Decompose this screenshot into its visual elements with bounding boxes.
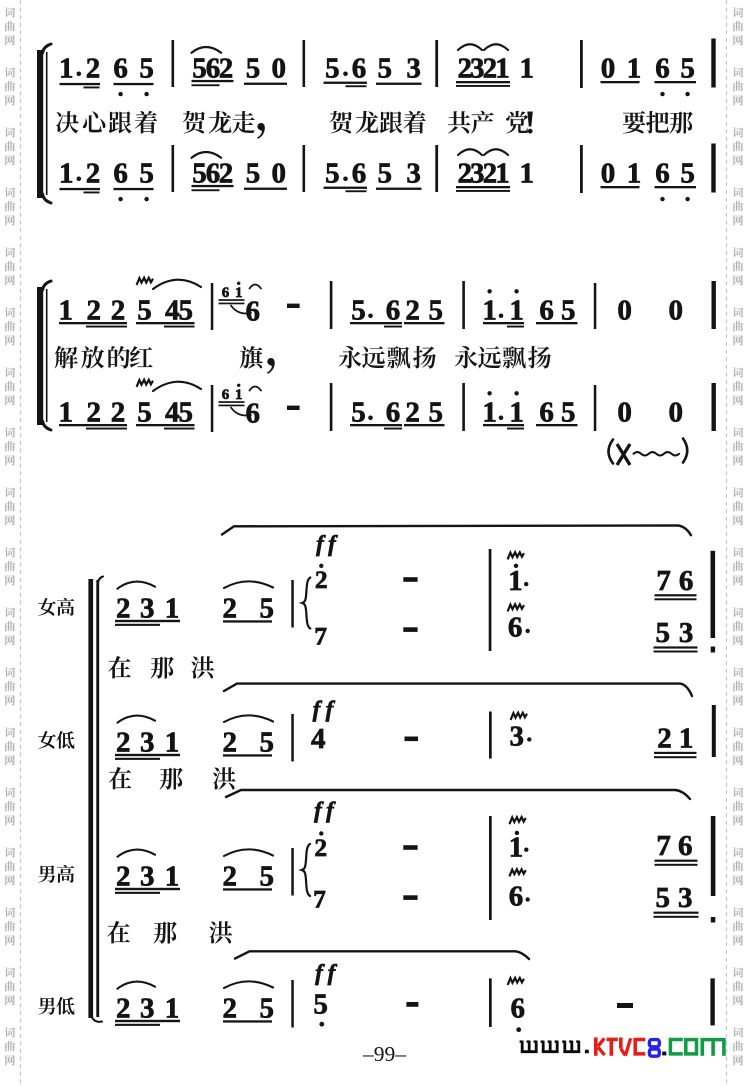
svg-text:1: 1 (509, 832, 524, 864)
svg-text:5: 5 (259, 860, 274, 892)
svg-text:5: 5 (192, 52, 207, 84)
svg-text:1: 1 (520, 157, 535, 189)
svg-text:0: 0 (271, 157, 286, 189)
svg-text:5: 5 (378, 52, 393, 84)
svg-text:5: 5 (137, 396, 152, 428)
svg-text:2: 2 (116, 860, 131, 892)
svg-text:5: 5 (561, 396, 576, 428)
svg-text:6: 6 (352, 52, 367, 84)
svg-text:6: 6 (222, 285, 230, 301)
svg-text:4: 4 (165, 294, 180, 326)
svg-text:7: 7 (313, 885, 326, 914)
svg-text:2: 2 (405, 294, 420, 326)
svg-text:6: 6 (508, 612, 523, 644)
svg-text:5: 5 (179, 294, 194, 326)
svg-text:7: 7 (656, 830, 671, 862)
svg-text:5: 5 (680, 52, 695, 84)
svg-text:2: 2 (223, 860, 238, 892)
svg-text:1: 1 (508, 565, 523, 597)
svg-text:6: 6 (222, 387, 230, 403)
svg-text:3: 3 (140, 592, 155, 624)
svg-text:7: 7 (314, 621, 327, 650)
svg-text:0: 0 (601, 52, 616, 84)
svg-text:1: 1 (165, 726, 180, 758)
svg-text:2: 2 (86, 52, 101, 84)
svg-text:2: 2 (116, 726, 131, 758)
svg-text:2: 2 (116, 592, 131, 624)
svg-text:6: 6 (386, 396, 401, 428)
svg-text:5: 5 (139, 52, 154, 84)
svg-text:3: 3 (140, 992, 155, 1024)
svg-text:3: 3 (140, 726, 155, 758)
svg-text:2: 2 (315, 565, 328, 594)
svg-text:2: 2 (86, 396, 101, 428)
svg-text:1: 1 (627, 52, 642, 84)
svg-text:2: 2 (111, 396, 126, 428)
svg-text:6: 6 (539, 294, 554, 326)
svg-text:0: 0 (669, 396, 684, 428)
svg-text:2: 2 (86, 294, 101, 326)
svg-text:6: 6 (678, 830, 693, 862)
svg-text:5: 5 (246, 157, 261, 189)
svg-text:5: 5 (325, 52, 340, 84)
svg-text:1: 1 (482, 396, 497, 428)
svg-text:5: 5 (137, 294, 152, 326)
svg-text:5: 5 (139, 157, 154, 189)
svg-text:0: 0 (617, 396, 632, 428)
svg-text:5: 5 (655, 617, 670, 649)
svg-text:5: 5 (655, 882, 670, 914)
svg-text:6: 6 (352, 157, 367, 189)
svg-text:1: 1 (235, 387, 243, 403)
svg-text:5: 5 (351, 396, 366, 428)
svg-text:5: 5 (313, 988, 328, 1020)
svg-text:6: 6 (655, 52, 670, 84)
svg-text:5: 5 (561, 294, 576, 326)
svg-text:6: 6 (511, 992, 526, 1024)
svg-text:5: 5 (246, 52, 261, 84)
svg-text:3: 3 (406, 52, 421, 84)
svg-text:3: 3 (406, 157, 421, 189)
svg-text:5: 5 (378, 157, 393, 189)
svg-text:2: 2 (223, 592, 238, 624)
svg-text:2: 2 (111, 294, 126, 326)
svg-text:2: 2 (405, 396, 420, 428)
svg-text:1: 1 (627, 157, 642, 189)
svg-text:5: 5 (259, 992, 274, 1024)
svg-text:1: 1 (495, 52, 510, 84)
svg-text:0: 0 (669, 294, 684, 326)
svg-text:5: 5 (325, 157, 340, 189)
svg-text:3: 3 (678, 882, 693, 914)
svg-text:2: 2 (116, 992, 131, 1024)
svg-text:1: 1 (165, 860, 180, 892)
svg-text:3: 3 (510, 721, 525, 753)
svg-text:1: 1 (679, 722, 694, 754)
svg-text:–99–: –99– (362, 1042, 406, 1066)
svg-text:3: 3 (140, 860, 155, 892)
svg-text:4: 4 (165, 396, 180, 428)
svg-text:5: 5 (259, 592, 274, 624)
svg-text:2: 2 (219, 52, 234, 84)
svg-text:2: 2 (657, 722, 672, 754)
svg-text:5: 5 (192, 157, 207, 189)
svg-text:6: 6 (509, 880, 524, 912)
svg-text:1: 1 (59, 52, 74, 84)
svg-text:1: 1 (495, 157, 510, 189)
svg-text:2: 2 (219, 157, 234, 189)
svg-text:4: 4 (311, 723, 326, 755)
svg-text:2: 2 (223, 992, 238, 1024)
svg-text:1: 1 (59, 396, 74, 428)
svg-text:2: 2 (223, 726, 238, 758)
svg-text:0: 0 (271, 52, 286, 84)
svg-text:6: 6 (245, 295, 260, 327)
svg-text:1: 1 (520, 52, 535, 84)
svg-text:3: 3 (679, 617, 694, 649)
svg-text:1: 1 (165, 992, 180, 1024)
svg-text:5: 5 (428, 294, 443, 326)
svg-text:6: 6 (245, 397, 260, 429)
svg-text:5: 5 (259, 726, 274, 758)
svg-text:6: 6 (655, 157, 670, 189)
svg-text:1: 1 (482, 294, 497, 326)
svg-text:1: 1 (509, 396, 524, 428)
svg-text:7: 7 (656, 565, 671, 597)
svg-text:1: 1 (59, 294, 74, 326)
svg-text:0: 0 (617, 294, 632, 326)
svg-text:5: 5 (428, 396, 443, 428)
svg-text:1: 1 (509, 294, 524, 326)
svg-text:1: 1 (235, 285, 243, 301)
svg-text:0: 0 (601, 157, 616, 189)
svg-text:5: 5 (179, 396, 194, 428)
svg-text:5: 5 (680, 157, 695, 189)
svg-text:2: 2 (86, 157, 101, 189)
svg-text:6: 6 (539, 396, 554, 428)
svg-text:1: 1 (59, 157, 74, 189)
svg-text:2: 2 (314, 833, 327, 862)
svg-text:6: 6 (386, 294, 401, 326)
svg-text:6: 6 (679, 565, 694, 597)
svg-text:1: 1 (165, 592, 180, 624)
svg-text:6: 6 (113, 52, 128, 84)
svg-text:5: 5 (351, 294, 366, 326)
svg-text:6: 6 (113, 157, 128, 189)
